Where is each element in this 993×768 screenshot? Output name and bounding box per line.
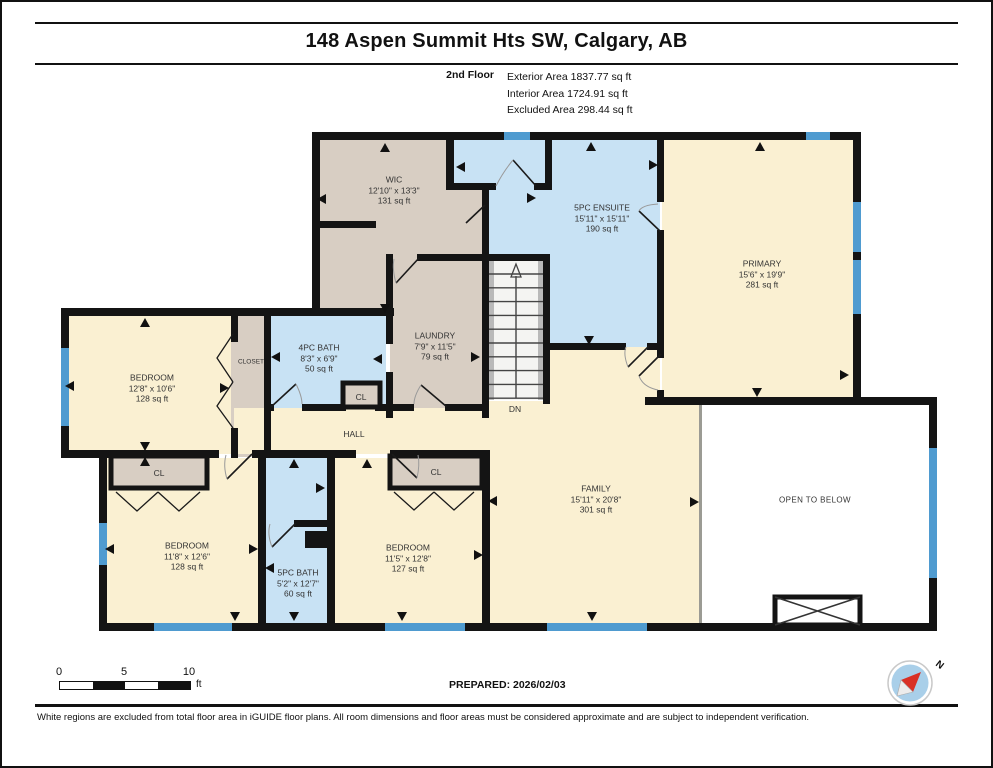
room-label-primary: PRIMARY15'6" x 19'9"281 sq ft xyxy=(739,258,786,290)
room-label-bedroom-bottom-mid: BEDROOM11'5" x 12'8"127 sq ft xyxy=(385,542,431,574)
hall-label: HALL xyxy=(343,429,364,439)
disclaimer-text: White regions are excluded from total fl… xyxy=(37,712,809,723)
cl-label-mid: CL xyxy=(431,467,442,477)
scale-unit: ft xyxy=(196,679,202,690)
room-label-family: FAMILY15'11" x 20'8"301 sq ft xyxy=(571,483,622,515)
dn-label: DN xyxy=(509,404,521,414)
prepared-date: PREPARED: 2026/02/03 xyxy=(449,679,566,691)
room-label-4pc-bath: 4PC BATH8'3" x 6'9"50 sq ft xyxy=(299,342,340,374)
closet-label: CLOSET xyxy=(238,359,264,366)
room-label-bedroom-left: BEDROOM12'8" x 10'6"128 sq ft xyxy=(129,372,176,404)
excluded-area-crossbox xyxy=(775,597,860,625)
room-label-bedroom-bottom-left: BEDROOM11'8" x 12'6"128 sq ft xyxy=(164,540,210,572)
open-to-below-label: OPEN TO BELOW xyxy=(779,496,851,505)
room-label-5pc-bath: 5PC BATH5'2" x 12'7"60 sq ft xyxy=(277,567,319,599)
scale-tick-5: 5 xyxy=(121,666,127,678)
room-label-wic: WIC12'10" x 13'3"131 sq ft xyxy=(368,174,419,206)
scale-bar: 0 5 10 ft xyxy=(59,666,189,694)
scale-tick-10: 10 xyxy=(183,666,195,678)
railing xyxy=(699,405,702,623)
floorplan-page: 148 Aspen Summit Hts SW, Calgary, AB 2nd… xyxy=(0,0,993,768)
scale-tick-0: 0 xyxy=(56,666,62,678)
scale-bar-strip xyxy=(59,681,191,690)
room-label-laundry: LAUNDRY7'9" x 11'5"79 sq ft xyxy=(414,330,455,362)
staircase xyxy=(489,261,543,400)
cl-label-hall: CL xyxy=(356,392,367,402)
room-label-ensuite: 5PC ENSUITE15'11" x 15'11"190 sq ft xyxy=(574,202,630,234)
cl-label-left: CL xyxy=(154,468,165,478)
compass-icon: N xyxy=(888,659,946,705)
svg-text:N: N xyxy=(933,659,945,672)
